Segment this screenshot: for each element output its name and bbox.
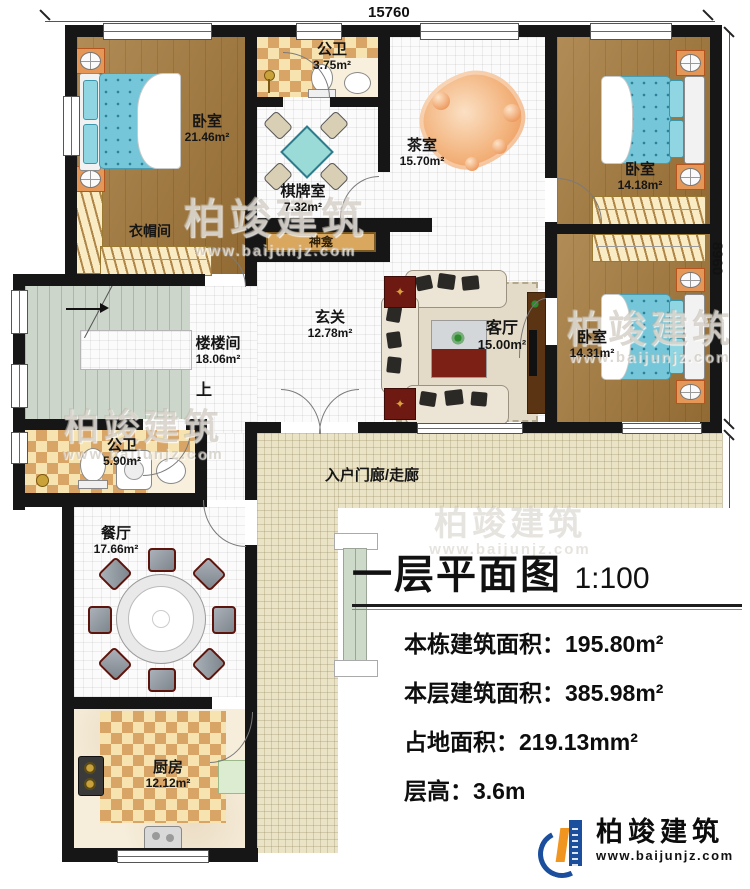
window [11,432,28,464]
bed-pillow [83,124,98,164]
window [117,850,209,863]
nightstand [76,48,105,74]
dimension-line-right-upper [729,33,730,426]
wall-hall-bedrooms-c [545,345,557,433]
wall-closet-divider [557,224,722,234]
window [420,23,519,40]
cutting-board [218,760,246,794]
wall-foyer-bottom-b [358,422,417,433]
room-label-bedroom-br: 卧室 14.31m² [570,330,615,360]
sofa-pillow [470,391,487,406]
sofa-pillow [437,273,456,290]
bed-headboard [684,294,705,380]
kitchen-sink-faucet [166,834,174,842]
tea-rug-ball [465,157,479,171]
bed-pillow [83,80,98,120]
window [63,96,80,156]
wall-left-lower [62,497,74,862]
towel-stand-pole [268,79,270,93]
brand-website: www.baijunjz.com [596,848,734,863]
bed-pillow [669,300,684,336]
plan-scale: 1:100 [574,562,649,595]
stove-burner [83,761,97,775]
wardrobe-strip-bottom [100,246,212,276]
bed-headboard [684,76,705,164]
tea-rug-ball [503,104,521,122]
window [622,423,702,434]
bed-pillow [669,120,684,158]
kitchen-sink-faucet [152,832,160,840]
end-table: ✦ [384,276,416,308]
bed-pillow [669,80,684,118]
title-row-land-area: 占地面积：219.13mm² [352,723,742,757]
wall-bath-top-bottom-b [330,97,378,107]
bed-blanket [601,76,633,164]
end-table: ✦ [384,388,416,420]
sofa-pillow [386,331,402,349]
nightstand [676,50,705,76]
title-underline [352,609,742,610]
wall-bath-mid-bottom [13,493,203,507]
shrine-banner: 神龛 [266,232,376,252]
stair-up-arrow [66,308,102,310]
dimension-line-top [45,21,715,22]
bed-blanket [137,73,181,169]
floor-plan-canvas: ✦ ✦ [0,0,750,889]
plant-stand [36,474,49,487]
plan-title: 一层平面图 [352,553,562,597]
wall-shrine-ext [390,218,432,232]
window [296,23,342,40]
room-label-chess: 棋牌室 7.32m² [280,184,325,214]
wall-foyer-bottom-c [521,422,622,433]
brand-logo: 柏竣建筑 www.baijunjz.com [538,812,748,882]
label-cloakroom: 衣帽间 [129,224,171,239]
title-block: 一层平面图 1:100 本栋建筑面积：195.80m² 本层建筑面积：385.9… [352,542,742,806]
wall-foyer-bottom-a [245,422,281,433]
dining-chair [88,606,112,634]
wall-hall-bedrooms-b [545,222,557,298]
plan-title-row: 一层平面图 1:100 [352,542,742,607]
dimension-top-value: 15760 [368,4,410,21]
sofa-pillow [461,275,479,291]
stair-up-arrow-head [100,303,109,313]
brand-text: 柏竣建筑 www.baijunjz.com [596,818,734,863]
closet-bedroom-br [592,234,706,262]
wall-center-lower-b [245,545,257,697]
tea-rug-ball [432,92,450,110]
room-label-bath-top: 公卫 3.75m² [313,42,351,72]
sofa-pillow [386,356,402,373]
room-label-foyer: 玄关 12.78m² [308,310,353,340]
window [11,364,28,408]
room-label-bedroom-tl: 卧室 21.46m² [185,114,230,144]
stove-burner [83,777,97,791]
title-row-floor-area: 本层建筑面积：385.98m² [352,674,742,708]
sofa-pillow [444,389,464,406]
title-row-storey-height: 层高：3.6m [352,772,742,806]
wall-bath-top-bottom-a [257,97,283,107]
room-label-tea: 茶室 15.70m² [400,138,445,168]
label-porch: 入户门廊/走廊 [325,468,419,485]
dining-chair [212,606,236,634]
room-label-stair-hall: 楼楼间 18.06m² [195,336,240,366]
floor-porch-vertical [257,433,338,853]
room-label-kitchen: 厨房 12.12m² [146,760,191,790]
room-label-bedroom-tr: 卧室 14.18m² [618,162,663,192]
nightstand [676,380,705,404]
closet-bedroom-tr-rod [596,209,700,210]
tea-rug-ball [492,139,507,154]
wardrobe-strip-left [75,188,103,274]
toilet-tank [78,480,108,489]
wall-bath-top-right [378,25,390,107]
wall-foyer-bottom-d [700,422,722,433]
window [103,23,212,40]
closet-bedroom-tr [592,196,706,226]
brand-logo-icon [538,816,590,872]
window [590,23,672,40]
window [417,423,523,434]
label-up: 上 [196,382,212,400]
wall-chess-right [378,107,390,172]
room-label-living: 客厅 15.00m² [478,320,526,352]
dimension-right-upper-value: 8960 [709,237,726,281]
dimension-tick [39,9,50,20]
dining-chair [148,548,176,572]
wall-center-lower-a [245,433,257,500]
bed-pillow [669,338,684,374]
wall-bath-mid-top-b [186,419,207,430]
dining-table-center [152,610,170,628]
wardrobe-rod [104,259,206,260]
dining-chair [148,668,176,692]
window [11,290,28,334]
logo-building-blue [569,820,582,866]
stair-landing [80,330,192,370]
brand-name: 柏竣建筑 [596,818,734,848]
room-label-bath-mid: 公卫 5.90m² [103,438,141,468]
room-label-dining: 餐厅 17.66m² [94,526,139,556]
wall-bath-mid-top-a [13,419,143,430]
wall-row1-bottom [13,274,205,286]
shrine-label: 神龛 [309,235,333,249]
dimension-tick [702,9,713,20]
sink [344,72,371,94]
floor-corridor [207,433,245,500]
sofa-pillow [419,391,437,407]
nightstand [676,164,705,190]
wall-kitchen-top [62,697,212,709]
title-row-building-area: 本栋建筑面积：195.80m² [352,625,742,659]
nightstand [676,268,705,292]
closet-bedroom-br-rod [596,246,700,247]
wall-hall-bedrooms-a [545,25,557,178]
